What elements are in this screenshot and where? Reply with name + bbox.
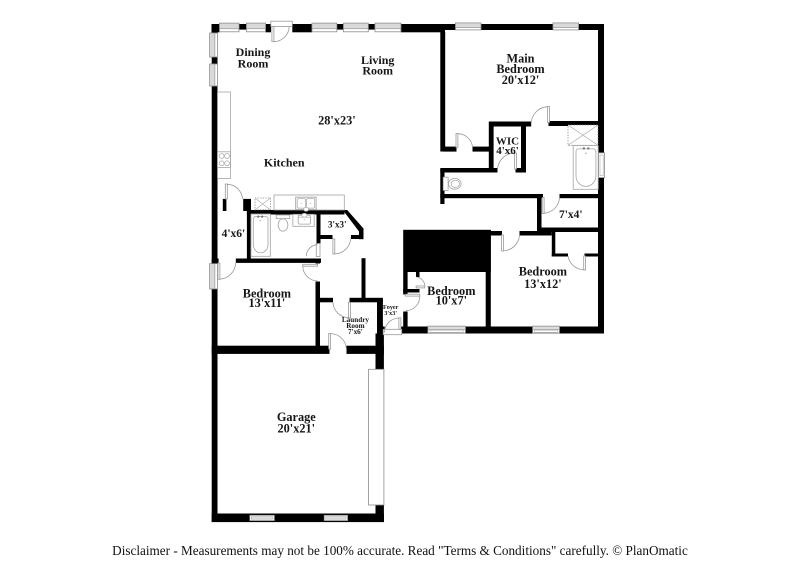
svg-text:3'x3': 3'x3'	[328, 219, 347, 229]
svg-text:4'x6': 4'x6'	[496, 145, 519, 157]
svg-text:10'x7': 10'x7'	[436, 294, 467, 308]
svg-text:28'x23': 28'x23'	[318, 114, 356, 128]
svg-text:20'x12': 20'x12'	[502, 73, 540, 87]
svg-text:7'x6': 7'x6'	[348, 328, 363, 336]
svg-text:Kitchen: Kitchen	[264, 156, 305, 170]
svg-text:4'x6': 4'x6'	[222, 228, 246, 240]
svg-text:Room: Room	[362, 64, 393, 78]
svg-text:Room: Room	[238, 57, 269, 71]
svg-text:13'x11': 13'x11'	[248, 296, 285, 310]
svg-text:Disclaimer - Measurements may: Disclaimer - Measurements may not be 100…	[112, 543, 688, 558]
svg-text:3'x3': 3'x3'	[384, 310, 397, 317]
svg-text:13'x12': 13'x12'	[524, 277, 562, 291]
svg-text:20'x21': 20'x21'	[278, 421, 316, 435]
svg-text:7'x4': 7'x4'	[559, 209, 583, 221]
